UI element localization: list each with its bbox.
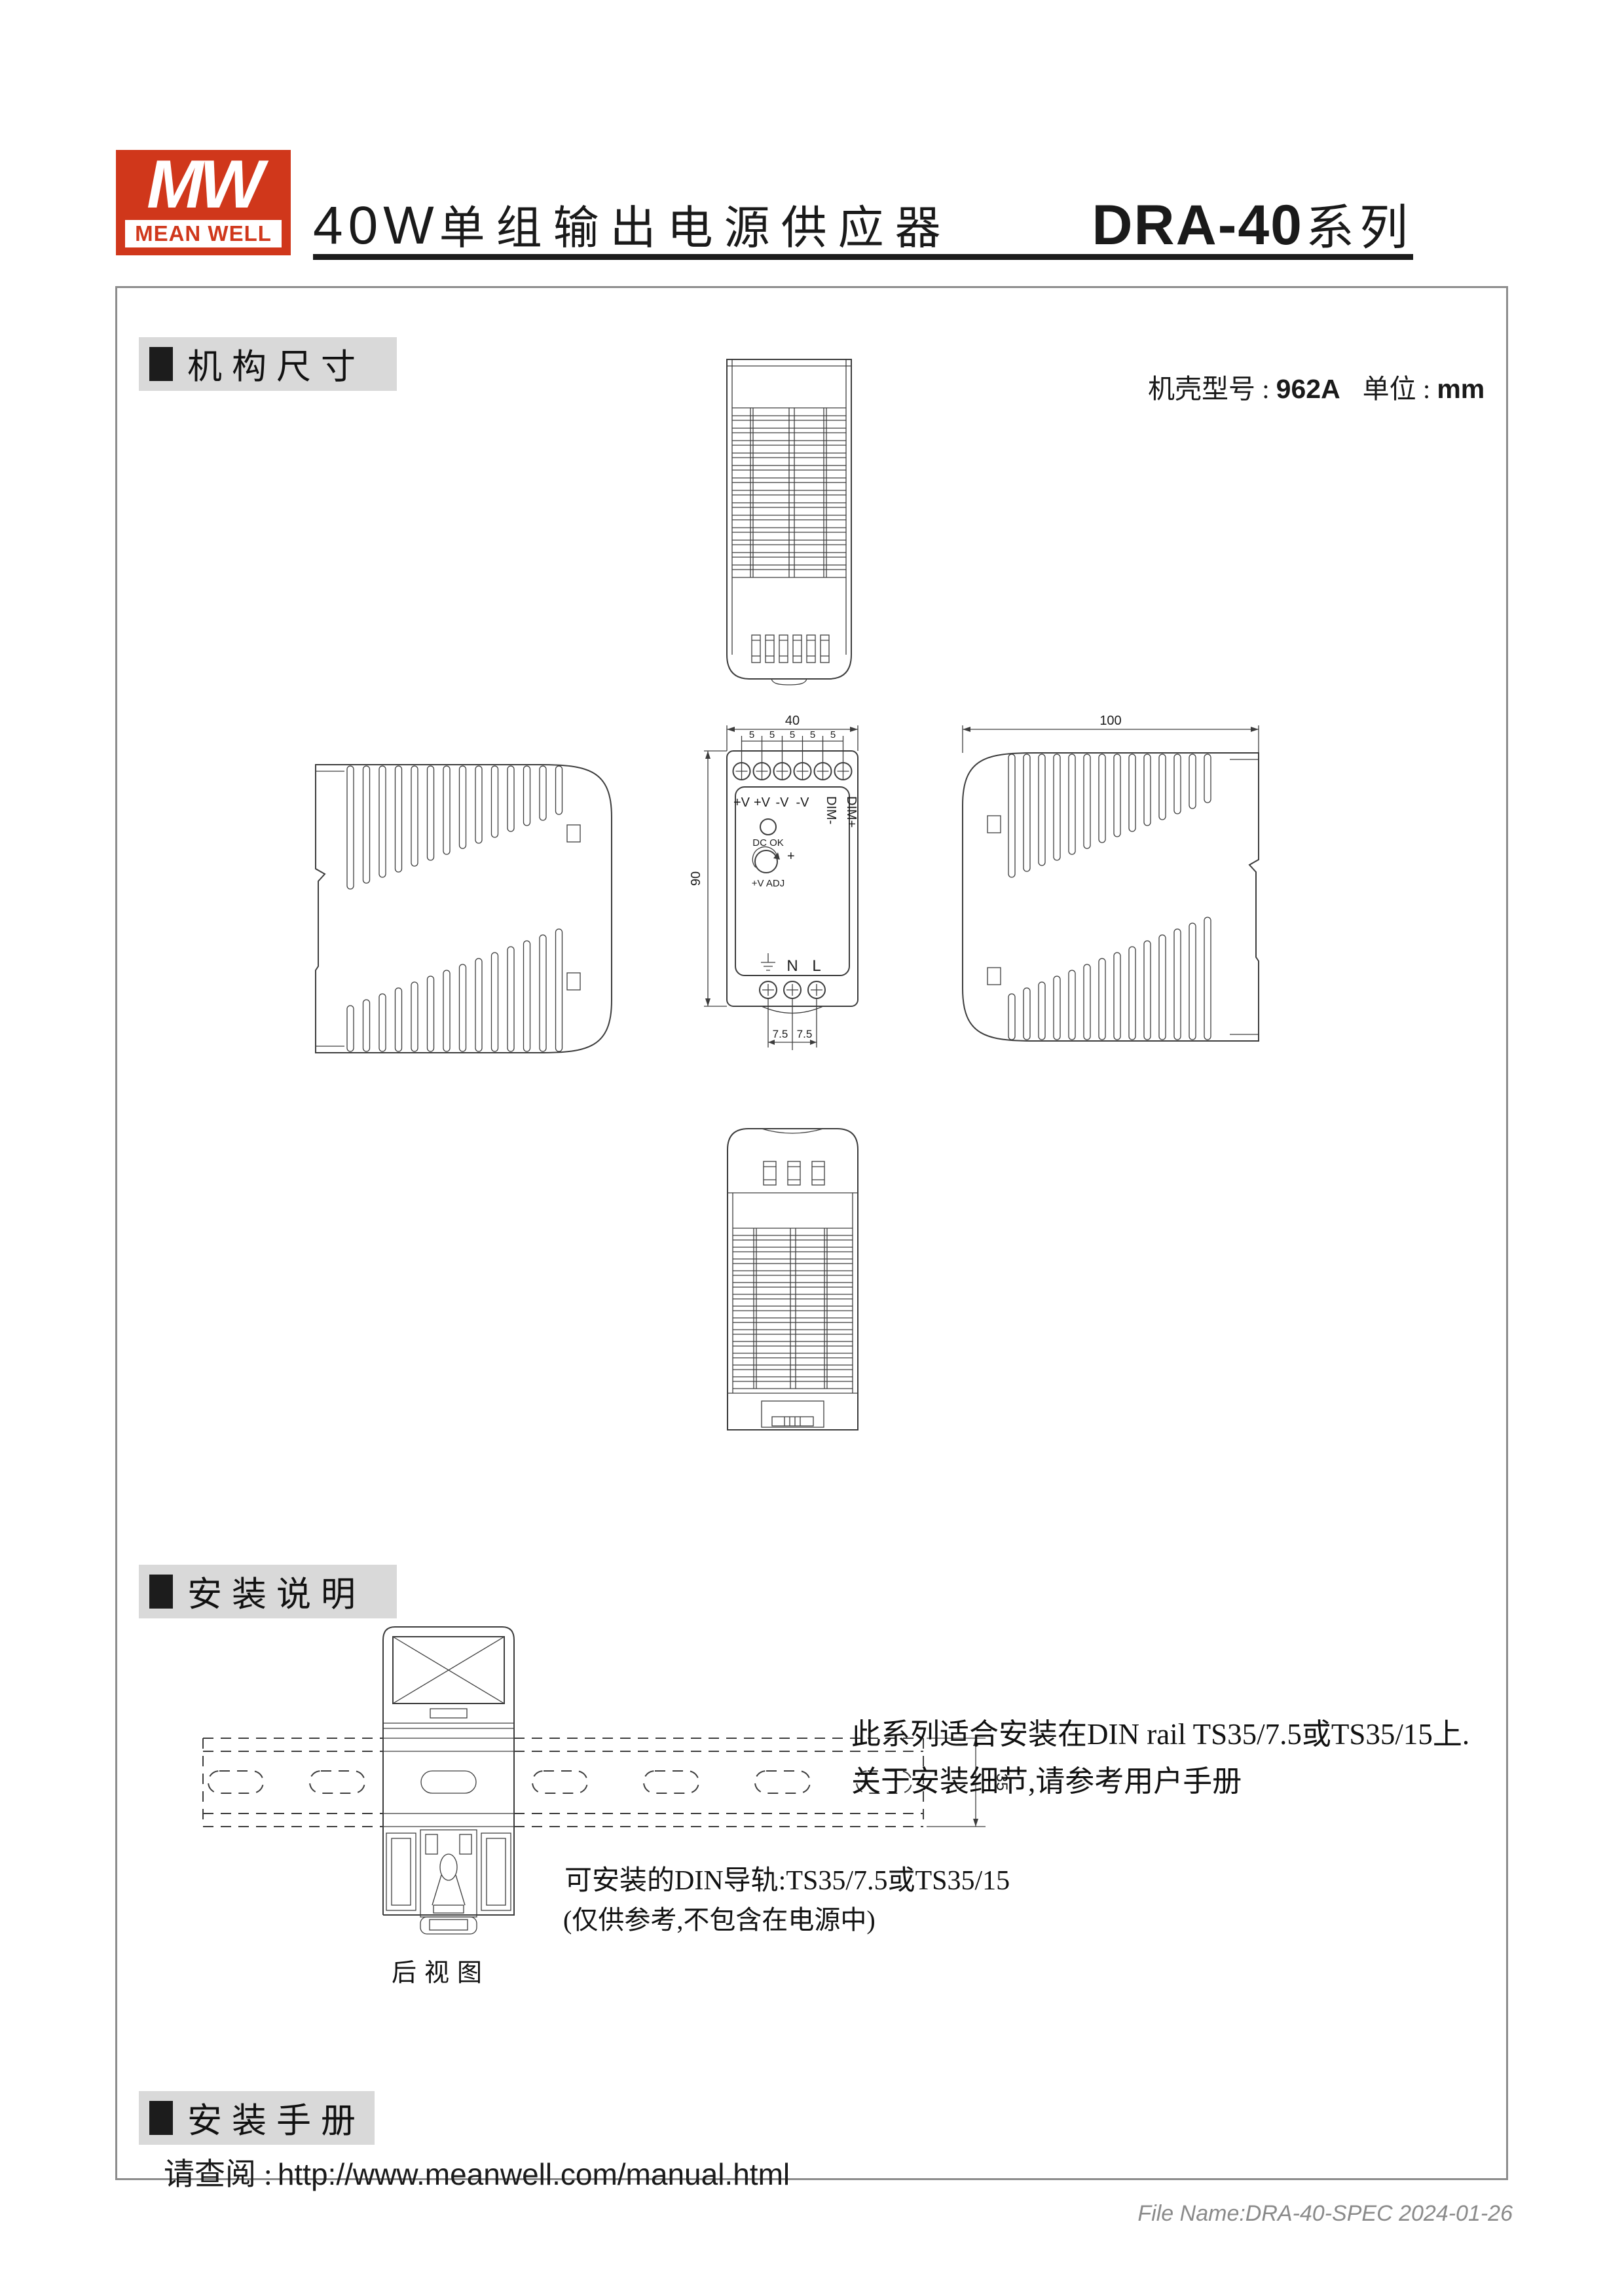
side-vent-comb-top bbox=[1008, 754, 1211, 877]
dim-depth-100: 100 bbox=[963, 714, 1259, 753]
top-view-terminal-slots bbox=[752, 635, 829, 663]
din-rail-behind-unit bbox=[383, 1738, 514, 1827]
bottom-view-outline bbox=[728, 1129, 858, 1430]
svg-text:7.5: 7.5 bbox=[797, 1028, 813, 1040]
section-installation-manual: 安装手册 bbox=[139, 2091, 375, 2145]
svg-text:100: 100 bbox=[1099, 714, 1121, 728]
front-view-drawing: 40 5 5 5 5 5 +V +V -V -V DIM- DIM+ DC OK bbox=[691, 707, 868, 1064]
side-vent-comb-bottom bbox=[1008, 917, 1211, 1040]
voltage-adjust-pot[interactable]: + +V ADJ bbox=[752, 847, 795, 889]
header-rule bbox=[313, 254, 1413, 260]
section-mechanical-dimensions: 机构尺寸 bbox=[139, 337, 397, 391]
rear-view-din-clip bbox=[386, 1830, 511, 1934]
bottom-view-vent-slats bbox=[733, 1228, 853, 1389]
dc-ok-led: DC OK bbox=[752, 819, 784, 848]
rear-view-caption: 后视图 bbox=[392, 1952, 490, 1988]
side-vent-comb-bottom bbox=[347, 929, 563, 1051]
earth-ground-icon bbox=[761, 953, 775, 970]
dim-width-label: 40 bbox=[785, 714, 800, 728]
file-info-footer: File Name:DRA-40-SPEC 2024-01-26 bbox=[1137, 2201, 1513, 2227]
logo-name-text: MEAN WELL bbox=[135, 221, 272, 246]
output-terminal-screws bbox=[733, 763, 852, 780]
ac-terminal-labels: N L bbox=[761, 953, 821, 975]
side-mount-holes bbox=[567, 825, 580, 990]
svg-text:L: L bbox=[812, 957, 821, 975]
svg-text:7.5: 7.5 bbox=[773, 1028, 788, 1040]
meanwell-logo: MW MEAN WELL bbox=[116, 150, 291, 255]
page-title-cjk: 单组输出电源供应器 bbox=[439, 191, 952, 257]
adj-label: +V ADJ bbox=[752, 878, 784, 889]
case-model-label: 机壳型号 : bbox=[1148, 367, 1270, 406]
case-model-value: 962A bbox=[1276, 374, 1340, 405]
logo-mw-monogram: MW bbox=[116, 149, 291, 221]
manual-reference-line: 请查阅 : http://www.meanwell.com/manual.htm… bbox=[164, 2149, 790, 2194]
svg-text:+V: +V bbox=[754, 795, 771, 810]
bottom-view-terminal-covers bbox=[764, 1161, 824, 1185]
right-side-view-drawing: 100 bbox=[951, 706, 1268, 1056]
dim-terminal-pitch: 5 5 5 5 5 bbox=[742, 729, 843, 780]
section-title-manual: 安装手册 bbox=[187, 2093, 365, 2143]
svg-text:5: 5 bbox=[790, 729, 795, 740]
bottom-view-din-clip bbox=[762, 1401, 824, 1427]
left-side-view-drawing bbox=[306, 759, 621, 1057]
manual-url-link[interactable]: http://www.meanwell.com/manual.html bbox=[278, 2157, 790, 2192]
side-vent-comb-top bbox=[347, 766, 563, 889]
dim-height-90: 90 bbox=[689, 751, 727, 1006]
adj-plus-sign: + bbox=[787, 849, 795, 864]
page-title-wattage: 40W bbox=[313, 195, 439, 257]
svg-text:DIM+: DIM+ bbox=[844, 796, 858, 828]
svg-text:-V: -V bbox=[776, 795, 790, 810]
din-rail-dashed bbox=[203, 1738, 923, 1827]
svg-text:-V: -V bbox=[796, 795, 810, 810]
output-terminal-labels: +V +V -V -V DIM- DIM+ bbox=[733, 795, 858, 828]
series-title: DRA-40 系列 bbox=[1092, 189, 1413, 259]
top-view-vent-slats bbox=[732, 408, 846, 577]
svg-text:+V: +V bbox=[733, 795, 750, 810]
svg-text:5: 5 bbox=[749, 729, 754, 740]
rail-reference-note: (仅供参考,不包含在电源中) bbox=[563, 1899, 876, 1937]
svg-text:5: 5 bbox=[830, 729, 836, 740]
side-body-outline bbox=[963, 753, 1259, 1041]
page-title: 40W 单组输出电源供应器 bbox=[313, 191, 952, 257]
datasheet-page: { "header": { "logo_mw": "MW", "logo_nam… bbox=[0, 0, 1624, 2296]
rail-compatibility-note: 可安装的DIN导轨:TS35/7.5或TS35/15 bbox=[564, 1858, 1010, 1898]
unit-label: 单位 : bbox=[1363, 367, 1431, 406]
svg-text:5: 5 bbox=[810, 729, 815, 740]
svg-text:N: N bbox=[786, 957, 798, 975]
case-model-note: 机壳型号 : 962A 单位 : mm bbox=[1148, 367, 1485, 406]
section-title-install: 安装说明 bbox=[187, 1567, 365, 1616]
series-suffix: 系列 bbox=[1306, 189, 1413, 259]
section-square-icon bbox=[149, 2101, 173, 2135]
side-body-outline bbox=[316, 765, 612, 1053]
bottom-view-drawing bbox=[722, 1123, 863, 1434]
logo-name-band: MEAN WELL bbox=[125, 220, 282, 247]
install-note-line1: 此系列适合安装在DIN rail TS35/7.5或TS35/15上. bbox=[851, 1710, 1469, 1753]
install-note-line2: 关于安装细节,请参考用户手册 bbox=[851, 1757, 1242, 1800]
section-title-mech: 机构尺寸 bbox=[187, 339, 365, 389]
top-view-drawing bbox=[720, 357, 858, 687]
unit-value: mm bbox=[1437, 374, 1485, 405]
svg-text:5: 5 bbox=[769, 729, 775, 740]
input-terminal-screws bbox=[760, 981, 825, 998]
section-square-icon bbox=[149, 347, 173, 381]
side-mount-holes bbox=[987, 816, 1001, 985]
svg-text:DIM-: DIM- bbox=[824, 796, 838, 824]
manual-prompt: 请查阅 : bbox=[164, 2149, 272, 2194]
series-model: DRA-40 bbox=[1092, 193, 1303, 258]
section-square-icon bbox=[149, 1575, 173, 1609]
svg-text:90: 90 bbox=[689, 871, 703, 886]
